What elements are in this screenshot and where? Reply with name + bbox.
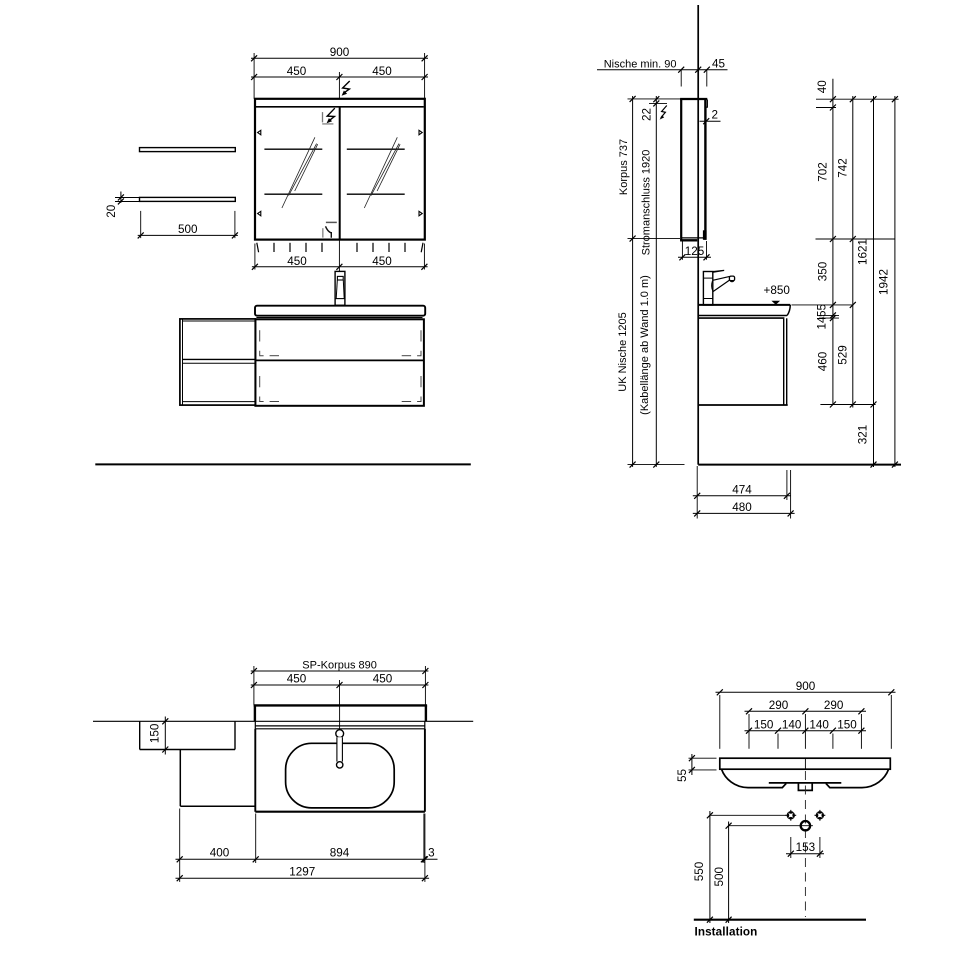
svg-text:450: 450 xyxy=(287,673,307,686)
svg-text:3: 3 xyxy=(428,847,435,860)
svg-text:40: 40 xyxy=(816,80,829,94)
svg-text:400: 400 xyxy=(210,847,230,860)
svg-text:450: 450 xyxy=(373,673,393,686)
svg-text:Stromanschluss 1920: Stromanschluss 1920 xyxy=(641,150,653,256)
svg-text:529: 529 xyxy=(837,345,850,365)
svg-text:125: 125 xyxy=(685,245,705,258)
svg-text:702: 702 xyxy=(817,162,830,182)
svg-text:1621: 1621 xyxy=(857,239,870,265)
svg-text:55: 55 xyxy=(676,769,689,783)
svg-text:150: 150 xyxy=(837,718,857,731)
svg-text:140: 140 xyxy=(782,718,802,731)
svg-text:480: 480 xyxy=(732,501,752,514)
svg-text:140: 140 xyxy=(809,718,829,731)
svg-text:350: 350 xyxy=(817,261,830,281)
svg-text:150: 150 xyxy=(754,718,774,731)
svg-text:900: 900 xyxy=(330,46,350,59)
svg-text:Installation: Installation xyxy=(695,926,758,939)
svg-text:+850: +850 xyxy=(764,284,791,297)
svg-text:SP-Korpus 890: SP-Korpus 890 xyxy=(302,660,377,672)
svg-text:Nische min. 90: Nische min. 90 xyxy=(604,59,677,71)
svg-text:550: 550 xyxy=(693,861,706,881)
svg-text:500: 500 xyxy=(178,223,198,236)
svg-text:153: 153 xyxy=(796,841,816,854)
svg-text:22: 22 xyxy=(641,108,654,121)
svg-text:321: 321 xyxy=(857,425,870,445)
svg-text:450: 450 xyxy=(372,255,392,268)
svg-text:500: 500 xyxy=(713,867,726,887)
svg-text:894: 894 xyxy=(330,847,350,860)
svg-text:450: 450 xyxy=(372,65,392,78)
svg-text:290: 290 xyxy=(769,699,789,712)
svg-text:1297: 1297 xyxy=(289,866,315,879)
svg-text:450: 450 xyxy=(287,255,307,268)
svg-text:20: 20 xyxy=(105,204,118,218)
svg-text:742: 742 xyxy=(837,158,850,178)
svg-text:45: 45 xyxy=(712,58,726,71)
svg-text:(Kabellänge ab Wand 1.0 m): (Kabellänge ab Wand 1.0 m) xyxy=(639,275,651,415)
svg-text:290: 290 xyxy=(824,699,844,712)
svg-text:450: 450 xyxy=(287,65,307,78)
svg-text:460: 460 xyxy=(817,351,830,371)
svg-text:1942: 1942 xyxy=(878,269,891,295)
svg-text:900: 900 xyxy=(796,680,816,693)
svg-text:2: 2 xyxy=(712,109,719,122)
svg-text:UK Nische 1205: UK Nische 1205 xyxy=(617,312,629,392)
svg-text:Korpus 737: Korpus 737 xyxy=(618,139,630,195)
svg-text:150: 150 xyxy=(149,723,162,743)
svg-text:474: 474 xyxy=(732,483,752,496)
